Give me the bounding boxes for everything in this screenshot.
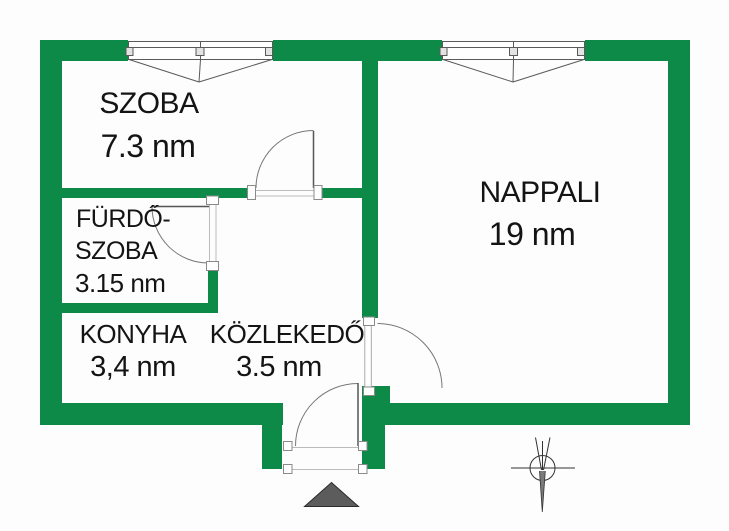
room-name-furdoszoba-line1: FÜRDŐ-: [76, 206, 170, 232]
room-name-nappali: NAPPALI: [438, 177, 642, 209]
room-area-furdoszoba: 3.15 nm: [75, 270, 165, 297]
room-name-szoba: SZOBA: [58, 88, 240, 120]
symbols-overlay: [0, 0, 729, 531]
window-szoba-icon: [126, 42, 273, 83]
room-name-konyha: KONYHA: [58, 321, 208, 348]
door-entrance-icon: [284, 383, 368, 474]
room-area-kozlekedo: 3.5 nm: [187, 352, 371, 382]
room-area-szoba: 7.3 nm: [58, 130, 238, 164]
room-area-konyha: 3,4 nm: [58, 352, 208, 382]
window-nappali-icon: [440, 42, 585, 83]
floor-plan: SZOBA 7.3 nm NAPPALI 19 nm FÜRDŐ- SZOBA …: [0, 0, 729, 531]
room-name-furdoszoba-line2: SZOBA: [75, 238, 157, 264]
entrance-marker-icon: [305, 483, 359, 507]
door-szoba-icon: [248, 131, 323, 200]
north-arrow-icon: [511, 438, 575, 513]
room-name-kozlekedo: KÖZLEKEDŐ: [195, 321, 379, 348]
room-area-nappali: 19 nm: [430, 218, 634, 252]
